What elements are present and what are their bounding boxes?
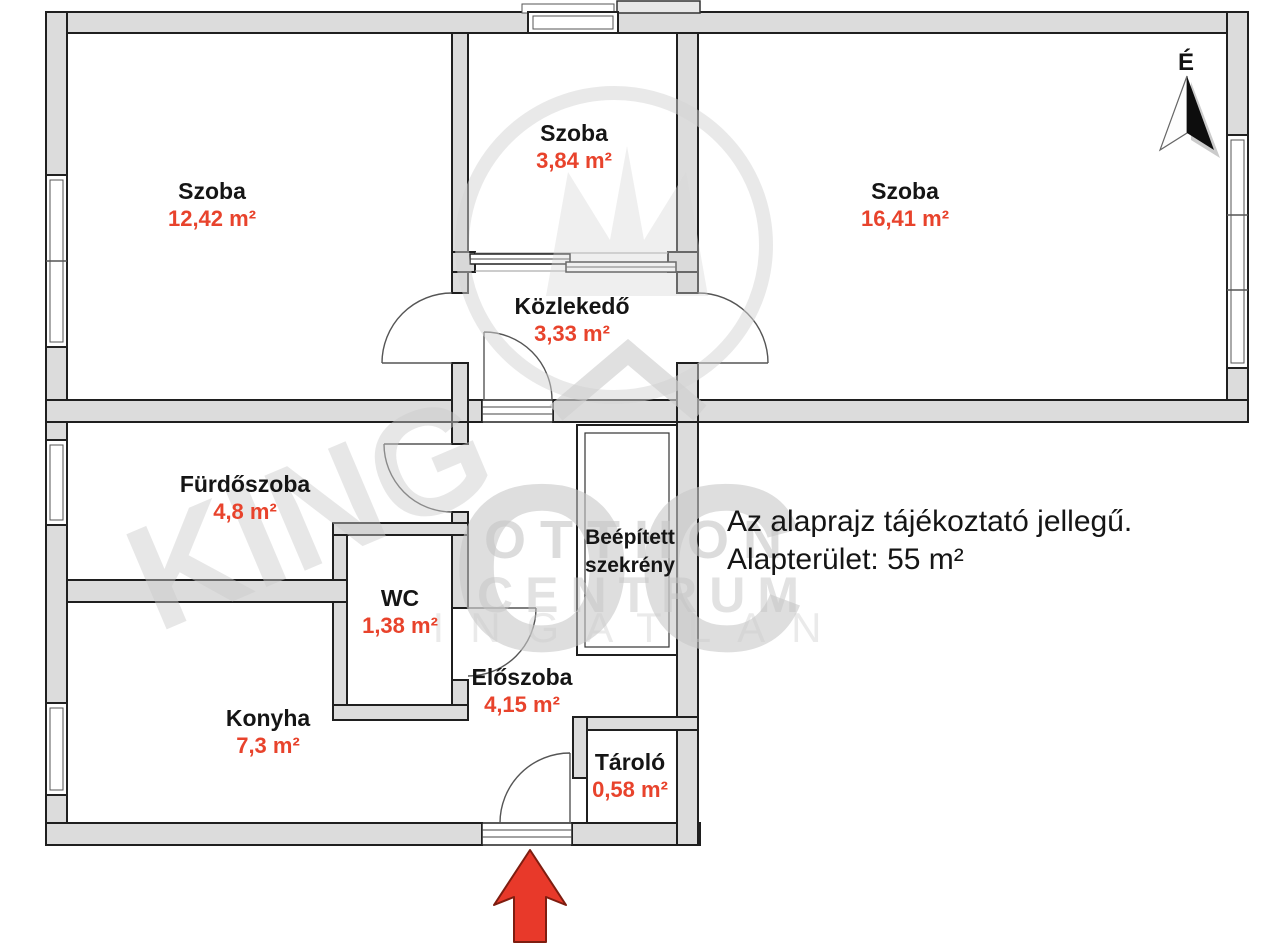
annotation-line-2: Alapterület: 55 m² xyxy=(727,541,1132,579)
room-name: szekrény xyxy=(585,552,675,580)
room-name: Előszoba xyxy=(472,665,573,689)
room-area: 3,84 m² xyxy=(536,149,612,173)
window-symbol xyxy=(46,175,67,347)
window-symbol xyxy=(528,12,618,33)
threshold xyxy=(482,400,553,422)
watermark-word3: INGATLAN xyxy=(433,604,848,651)
entrance-threshold xyxy=(482,823,572,845)
door-swing-entrance xyxy=(500,753,570,823)
room-label-szoba-3: Szoba 16,41 m² xyxy=(861,179,949,231)
north-label: É xyxy=(1178,48,1194,76)
room-label-eloszoba: Előszoba 4,15 m² xyxy=(472,665,573,717)
room-label-furdoszoba: Fürdőszoba 4,8 m² xyxy=(180,472,310,524)
window-symbol xyxy=(46,703,67,795)
room-label-szoba-1: Szoba 12,42 m² xyxy=(168,179,256,231)
window-symbol xyxy=(46,440,67,525)
room-label-wc: WC 1,38 m² xyxy=(362,586,438,638)
room-label-tarolo: Tároló 0,58 m² xyxy=(592,750,668,802)
wall xyxy=(333,705,468,720)
room-name: Szoba xyxy=(861,179,949,203)
room-label-konyha: Konyha 7,3 m² xyxy=(226,706,310,758)
room-name: Konyha xyxy=(226,706,310,730)
room-area: 0,58 m² xyxy=(592,778,668,802)
room-name: Fürdőszoba xyxy=(180,472,310,496)
room-label-kozlekedo: Közlekedő 3,33 m² xyxy=(514,294,629,346)
exterior-shaft xyxy=(617,1,700,13)
room-name: Szoba xyxy=(536,121,612,145)
room-area: 1,38 m² xyxy=(362,614,438,638)
wall xyxy=(46,823,482,845)
room-label-szoba-2: Szoba 3,84 m² xyxy=(536,121,612,173)
room-name: Szoba xyxy=(168,179,256,203)
room-area: 4,8 m² xyxy=(180,500,310,524)
room-name: WC xyxy=(362,586,438,610)
north-arrow-icon xyxy=(1160,76,1187,150)
wall xyxy=(573,717,587,778)
floor-plan: OC OTTHON CENTRUM INGATLAN KING É Szoba … xyxy=(0,0,1280,945)
wall xyxy=(573,717,698,730)
door-swing-szoba-left xyxy=(382,293,452,363)
room-area: 12,42 m² xyxy=(168,207,256,231)
room-area: 16,41 m² xyxy=(861,207,949,231)
north-compass: É xyxy=(1160,48,1220,158)
room-name: Tároló xyxy=(592,750,668,774)
room-area: 7,3 m² xyxy=(226,734,310,758)
window-symbol xyxy=(1227,135,1248,368)
room-area: 3,33 m² xyxy=(514,322,629,346)
plan-annotation: Az alaprajz tájékoztató jellegű. Alapter… xyxy=(727,503,1132,579)
room-name: Közlekedő xyxy=(514,294,629,318)
room-name: Beépített xyxy=(585,524,675,552)
wall xyxy=(553,400,1248,422)
annotation-line-1: Az alaprajz tájékoztató jellegű. xyxy=(727,503,1132,541)
room-area: 4,15 m² xyxy=(472,693,573,717)
room-label-beepitett-szekreny: Beépített szekrény xyxy=(585,524,675,580)
entrance-arrow-icon xyxy=(494,850,566,942)
wall xyxy=(46,12,1248,33)
